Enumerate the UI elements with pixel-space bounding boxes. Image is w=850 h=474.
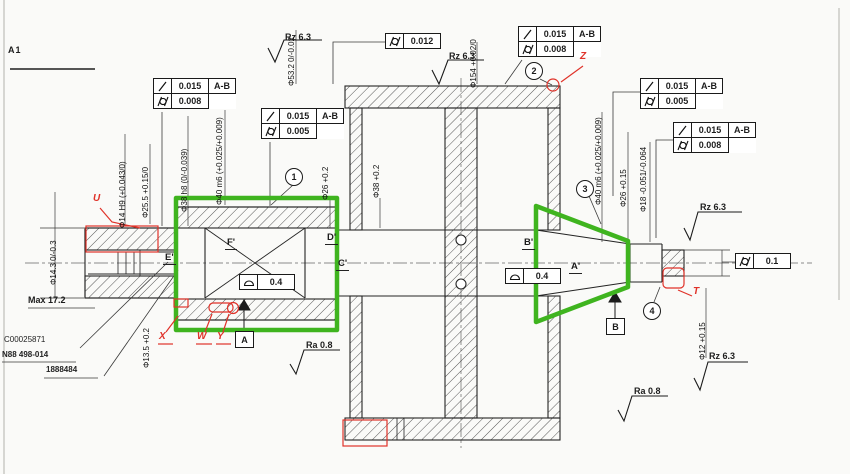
- cylindricity-icon: [673, 137, 692, 153]
- runout-icon: [261, 108, 280, 124]
- datum-reference: A-B: [573, 26, 601, 42]
- tolerance-value: 0.015: [658, 78, 696, 94]
- engineering-drawing-canvas: A1 Φ14.3 0/-0.3 Φ14 H9 (+0.043/0) Φ25.5 …: [0, 0, 850, 474]
- balloon-2: 2: [525, 62, 543, 80]
- surface-ra08-bottom-left: Ra 0.8: [306, 341, 333, 350]
- profile-icon: [239, 274, 258, 290]
- balloon-4: 4: [643, 302, 661, 320]
- surface-rz63-top-mid: Rz 6.3: [449, 52, 475, 61]
- dim-phi40-m6-right: Φ40 m6 (+0.025/+0.009): [595, 117, 603, 205]
- runout-icon: [518, 26, 537, 42]
- cylindricity-icon: [261, 123, 280, 139]
- tolerance-value: 0.005: [658, 93, 696, 109]
- dim-phi26-bore: Φ26 +0.2: [322, 167, 330, 200]
- dim-phi14-3: Φ14.3 0/-0.3: [50, 240, 58, 285]
- surface-ra08-bottom-mid: Ra 0.8: [634, 387, 661, 396]
- note-drawing-number: N88 498-014: [2, 351, 48, 359]
- red-label-z: Z: [580, 52, 586, 62]
- datum-reference: A-B: [208, 78, 236, 94]
- tolerance-value: 0.4: [523, 268, 561, 284]
- datum-b-box: B: [606, 318, 625, 335]
- balloon-1: 1: [285, 168, 303, 186]
- dim-phi38-bore: Φ38 +0.2: [373, 165, 381, 198]
- fcf-runout-0015-right-lower: 0.015 A-B 0.008: [673, 122, 756, 153]
- note-stamp: 1888484: [46, 366, 77, 374]
- tolerance-value: 0.1: [753, 253, 791, 269]
- runout-icon: [640, 78, 659, 94]
- fcf-runout-0015-left: 0.015 A-B 0.008: [153, 78, 236, 109]
- tolerance-value: 0.005: [279, 123, 317, 139]
- label-d-prime: D': [325, 233, 338, 245]
- label-a-prime: A': [569, 262, 582, 274]
- dim-phi40-m6-left: Φ40 m6 (+0.025/+0.009): [216, 117, 224, 205]
- extension-lines: [28, 30, 735, 358]
- dim-phi26-right: Φ26 +0.15: [620, 169, 628, 207]
- fcf-profile-04-right: 0.4: [505, 268, 561, 284]
- sheet-label: A1: [8, 46, 22, 55]
- dim-phi25-5: Φ25.5 +0.15/0: [142, 167, 150, 218]
- tolerance-value: 0.4: [257, 274, 295, 290]
- datum-a-box: A: [235, 331, 254, 348]
- drawing-lineart: [0, 0, 850, 474]
- label-e-prime: E': [163, 253, 176, 265]
- cylindricity-icon: [735, 253, 754, 269]
- dim-phi13-5: Φ13.5 +0.2: [143, 328, 151, 368]
- surface-rz63-right: Rz 6.3: [700, 203, 726, 212]
- red-label-y: Y: [217, 332, 224, 342]
- dim-phi53-2: Φ53.2 0/-0.02: [288, 37, 296, 86]
- keyed-shaft-section: [176, 207, 337, 320]
- fcf-cylindricity-0012: 0.012: [385, 33, 441, 49]
- fcf-runout-0015-mid-left: 0.015 A-B 0.005: [261, 108, 344, 139]
- runout-icon: [153, 78, 172, 94]
- tolerance-value: 0.015: [279, 108, 317, 124]
- fcf-runout-0015-right-upper: 0.015 A-B 0.005: [640, 78, 723, 109]
- balloon-3: 3: [576, 180, 594, 198]
- tolerance-value: 0.012: [403, 33, 441, 49]
- note-part-number: C00025871: [4, 336, 45, 344]
- fcf-runout-0015-top: 0.015 A-B 0.008: [518, 26, 601, 57]
- datum-reference: A-B: [316, 108, 344, 124]
- datum-reference: A-B: [695, 78, 723, 94]
- label-c-prime: C': [336, 259, 349, 271]
- datum-reference: A-B: [728, 122, 756, 138]
- dim-phi14-h9: Φ14 H9 (+0.043/0): [119, 161, 127, 228]
- label-b-prime: B': [522, 238, 535, 250]
- tolerance-value: 0.008: [691, 137, 729, 153]
- profile-icon: [505, 268, 524, 284]
- tolerance-value: 0.008: [171, 93, 209, 109]
- surface-rz63-top-left: Rz 6.3: [285, 33, 311, 42]
- red-label-x: X: [159, 332, 166, 342]
- cylindricity-icon: [518, 41, 537, 57]
- dim-phi18: Φ18 -0.051/-0.064: [640, 147, 648, 212]
- cylindricity-icon: [385, 33, 404, 49]
- tolerance-value: 0.008: [536, 41, 574, 57]
- surface-rz63-bottom-right: Rz 6.3: [709, 352, 735, 361]
- tolerance-value: 0.015: [691, 122, 729, 138]
- tolerance-value: 0.015: [536, 26, 574, 42]
- label-f-prime: F': [225, 238, 237, 250]
- cylindricity-icon: [640, 93, 659, 109]
- dim-max-17-2: Max 17.2: [28, 296, 66, 305]
- runout-icon: [673, 122, 692, 138]
- dim-phi38-h8: Φ38 h8 (0/-0.039): [181, 149, 189, 212]
- red-label-t: T: [693, 287, 699, 297]
- red-label-u: U: [93, 194, 100, 204]
- cylindricity-icon: [153, 93, 172, 109]
- fcf-cylindricity-01: 0.1: [735, 253, 791, 269]
- tolerance-value: 0.015: [171, 78, 209, 94]
- dim-phi154: Φ154 +0.02/0: [470, 39, 478, 88]
- dim-phi12: Φ12 +0.15: [699, 322, 707, 360]
- fcf-profile-04-left: 0.4: [239, 274, 295, 290]
- red-label-w: W: [197, 332, 206, 342]
